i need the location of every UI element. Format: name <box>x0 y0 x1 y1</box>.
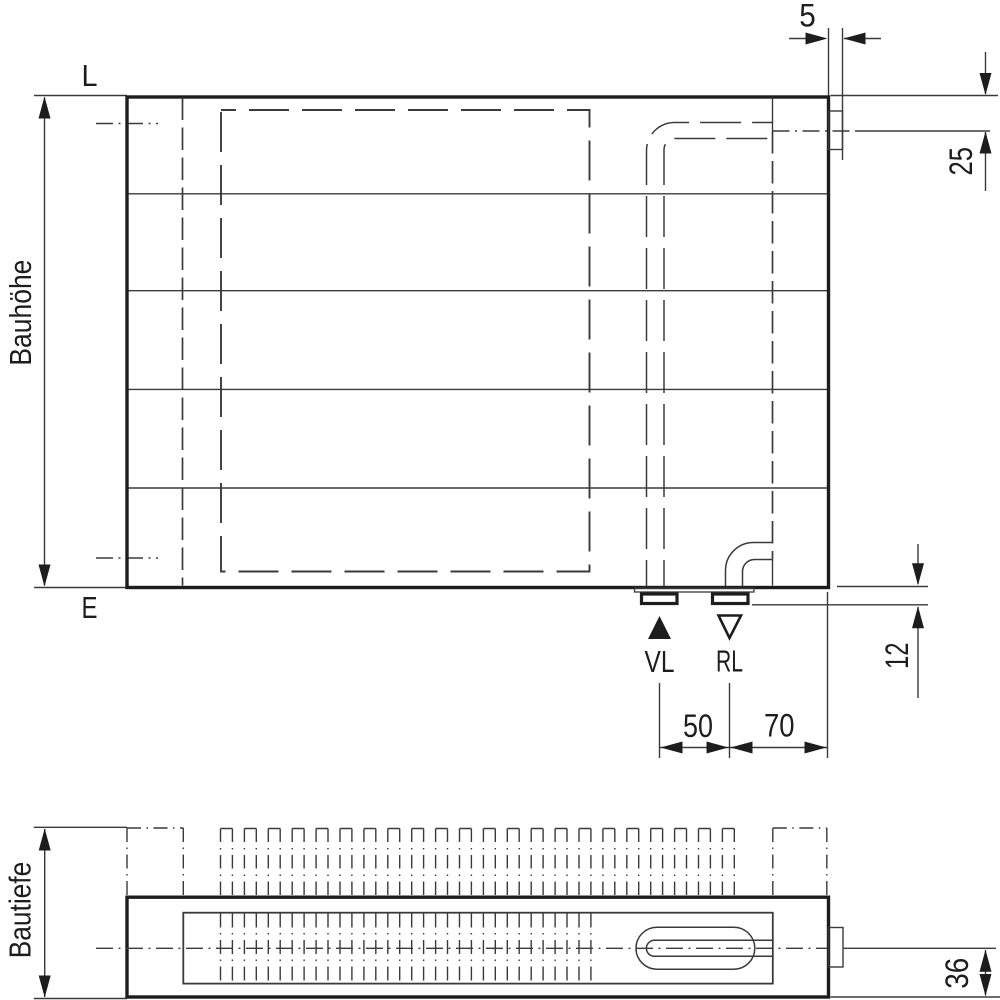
svg-text:70: 70 <box>764 708 795 744</box>
svg-text:E: E <box>82 590 98 625</box>
svg-text:36: 36 <box>939 958 975 989</box>
svg-text:RL: RL <box>716 644 743 679</box>
svg-text:50: 50 <box>683 708 713 744</box>
svg-text:Bautiefe: Bautiefe <box>3 862 38 959</box>
svg-text:Bauhöhe: Bauhöhe <box>3 260 38 366</box>
svg-text:25: 25 <box>943 147 979 176</box>
svg-text:5: 5 <box>799 0 816 34</box>
svg-text:12: 12 <box>879 642 915 669</box>
svg-text:VL: VL <box>645 644 675 679</box>
svg-text:L: L <box>82 58 98 93</box>
